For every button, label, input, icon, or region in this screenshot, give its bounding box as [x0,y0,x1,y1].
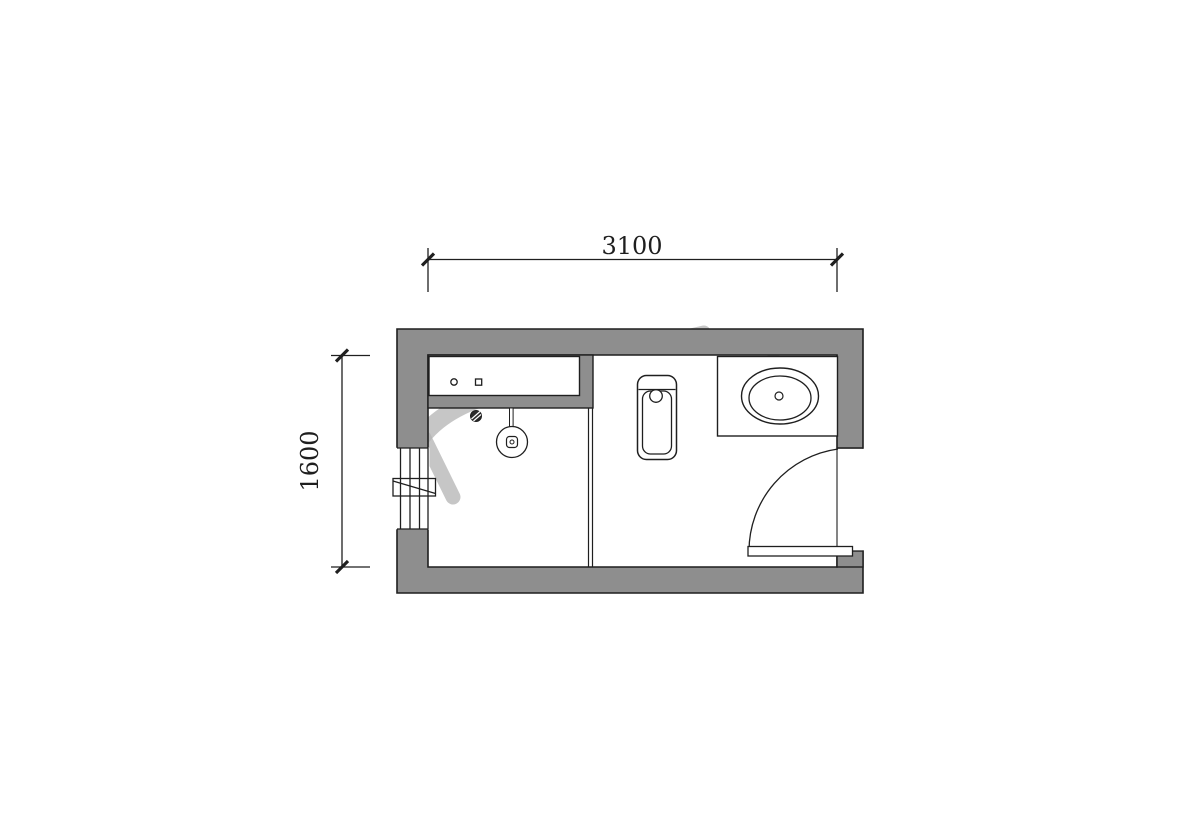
counter-shelf-top [429,357,580,396]
supply-point-circle-icon [451,379,457,385]
dimension-width-label: 3100 [601,232,662,260]
shower-head-mount [507,437,518,448]
squat-toilet [638,376,677,460]
dimension-width: 3100 [422,232,843,292]
door-swing-arc [749,449,838,551]
floor-drain [471,411,482,422]
floor-plan-svg: 3100 1600 [0,0,1198,831]
toilet-flush-icon [650,390,663,403]
window-opening [394,448,430,530]
door-opening [836,449,865,551]
door [748,448,865,567]
washbasin-counter [718,357,838,437]
toilet-outline [638,376,677,460]
dimension-height: 1600 [296,350,370,574]
floor-plan-page: 3100 1600 [0,0,1198,831]
glass-partition [589,408,593,567]
supply-point-square-icon [476,379,482,385]
shower-head [497,408,528,458]
window [393,448,436,530]
door-leaf [748,547,853,557]
dimension-height-label: 1600 [296,430,324,491]
basin-drain [775,392,783,400]
counter-shelf [429,357,580,396]
